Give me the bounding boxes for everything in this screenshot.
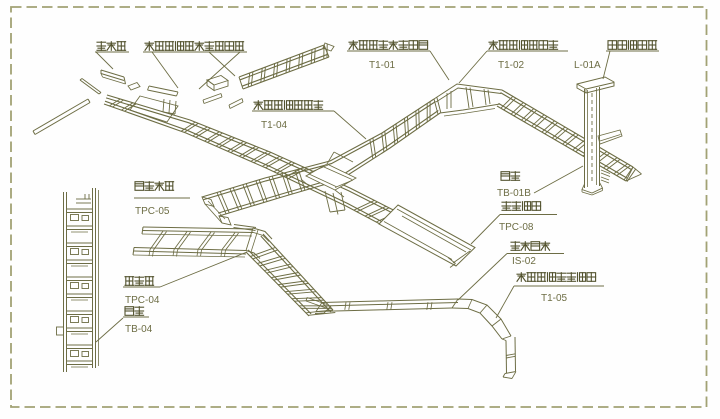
- svg-text:IS-02: IS-02: [512, 256, 536, 267]
- svg-text:L-01A: L-01A: [574, 60, 601, 71]
- svg-text:TB-01B: TB-01B: [497, 188, 531, 199]
- svg-text:TPC-05: TPC-05: [135, 206, 170, 217]
- svg-text:T1-02: T1-02: [498, 60, 525, 71]
- svg-text:T1-05: T1-05: [541, 293, 568, 304]
- svg-text:TPC-04: TPC-04: [125, 295, 160, 306]
- svg-text:TB-04: TB-04: [125, 324, 153, 335]
- svg-text:TPC-08: TPC-08: [499, 222, 534, 233]
- svg-text:T1-01: T1-01: [369, 60, 396, 71]
- svg-text:T1-04: T1-04: [261, 120, 288, 131]
